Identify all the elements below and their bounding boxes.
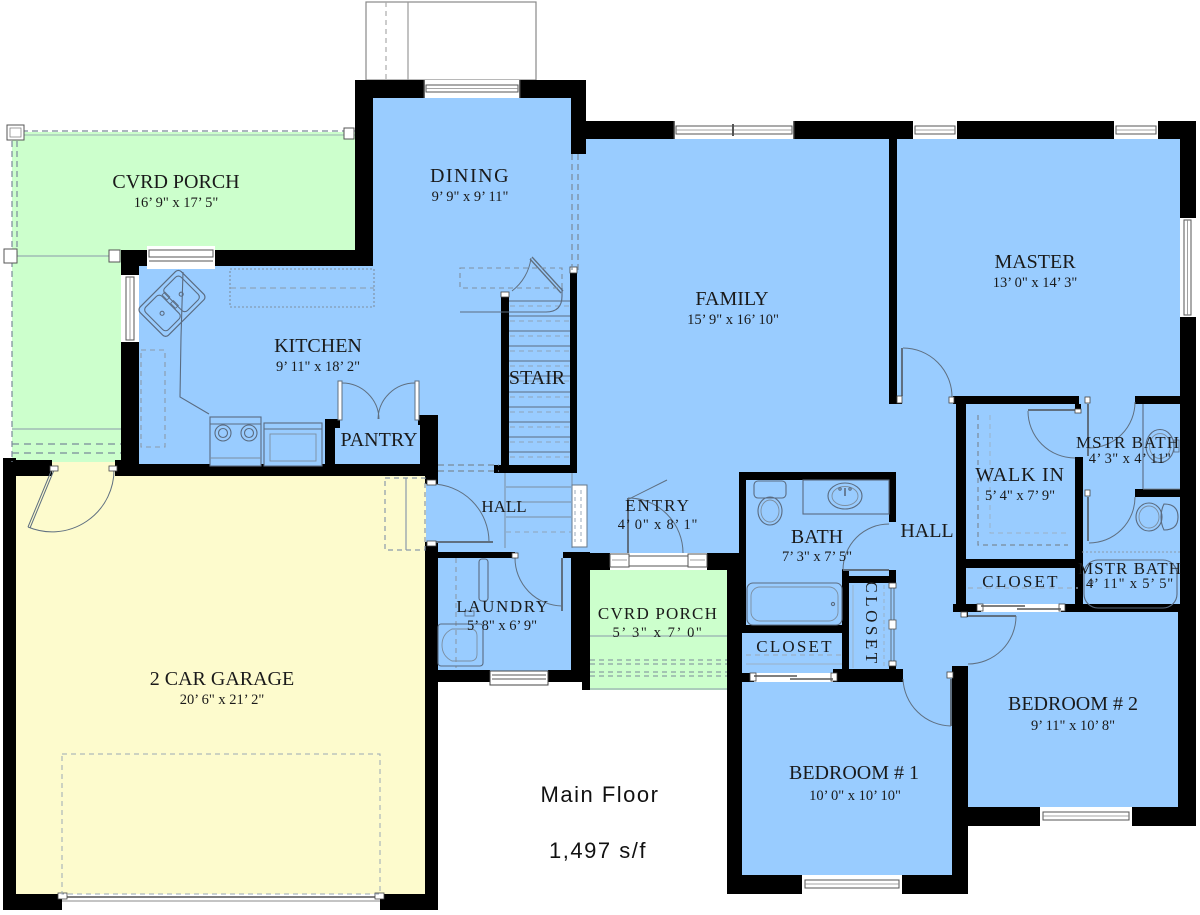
svg-text:MASTER: MASTER xyxy=(994,251,1076,273)
svg-text:KITCHEN: KITCHEN xyxy=(274,335,362,357)
svg-text:FAMILY: FAMILY xyxy=(695,288,768,310)
svg-text:CLOSET: CLOSET xyxy=(862,581,881,666)
svg-text:9’ 9" x 9’ 11": 9’ 9" x 9’ 11" xyxy=(432,189,509,205)
svg-text:CLOSET: CLOSET xyxy=(982,572,1059,591)
svg-text:WALK IN: WALK IN xyxy=(975,464,1064,486)
svg-text:BATH: BATH xyxy=(791,526,843,548)
svg-text:HALL: HALL xyxy=(481,497,526,516)
svg-text:BEDROOM # 1: BEDROOM # 1 xyxy=(789,762,919,784)
svg-text:5’ 4" x 7’ 9": 5’ 4" x 7’ 9" xyxy=(985,488,1055,504)
svg-text:CLOSET: CLOSET xyxy=(756,637,833,656)
svg-text:STAIR: STAIR xyxy=(509,367,566,389)
svg-text:2 CAR GARAGE: 2 CAR GARAGE xyxy=(150,668,294,690)
svg-text:5’ 8" x 6’ 9": 5’ 8" x 6’ 9" xyxy=(467,618,537,634)
svg-text:5’ 3" x 7’ 0": 5’ 3" x 7’ 0" xyxy=(613,625,704,641)
svg-text:MSTR BATH: MSTR BATH xyxy=(1076,433,1180,452)
svg-text:16’ 9" x 17’ 5": 16’ 9" x 17’ 5" xyxy=(134,195,219,211)
svg-text:4’ 11" x 5’ 5": 4’ 11" x 5’ 5" xyxy=(1086,576,1174,592)
svg-text:13’ 0" x 14’ 3": 13’ 0" x 14’ 3" xyxy=(993,275,1078,291)
svg-text:10’ 0" x 10’ 10": 10’ 0" x 10’ 10" xyxy=(809,788,901,804)
svg-text:15’ 9" x 16’ 10": 15’ 9" x 16’ 10" xyxy=(687,312,779,328)
svg-text:Main Floor: Main Floor xyxy=(541,782,660,807)
svg-text:CVRD PORCH: CVRD PORCH xyxy=(598,604,718,623)
svg-text:LAUNDRY: LAUNDRY xyxy=(456,597,549,616)
svg-text:ENTRY: ENTRY xyxy=(625,496,691,515)
svg-text:20’ 6" x 21’ 2": 20’ 6" x 21’ 2" xyxy=(180,692,265,708)
svg-text:9’ 11" x 18’ 2": 9’ 11" x 18’ 2" xyxy=(276,359,360,375)
svg-text:DINING: DINING xyxy=(430,165,510,187)
svg-text:9’ 11" x 10’ 8": 9’ 11" x 10’ 8" xyxy=(1031,718,1115,734)
svg-text:1,497 s/f: 1,497 s/f xyxy=(549,838,647,863)
svg-text:BEDROOM # 2: BEDROOM # 2 xyxy=(1008,693,1138,715)
svg-text:HALL: HALL xyxy=(900,520,953,542)
svg-text:7’ 3" x 7’ 5": 7’ 3" x 7’ 5" xyxy=(782,549,852,565)
svg-text:CVRD PORCH: CVRD PORCH xyxy=(112,171,239,193)
svg-text:4’ 3" x 4’ 11": 4’ 3" x 4’ 11" xyxy=(1089,451,1171,467)
svg-text:PANTRY: PANTRY xyxy=(340,429,417,451)
svg-text:4’ 0" x 8’ 1": 4’ 0" x 8’ 1" xyxy=(618,517,699,533)
